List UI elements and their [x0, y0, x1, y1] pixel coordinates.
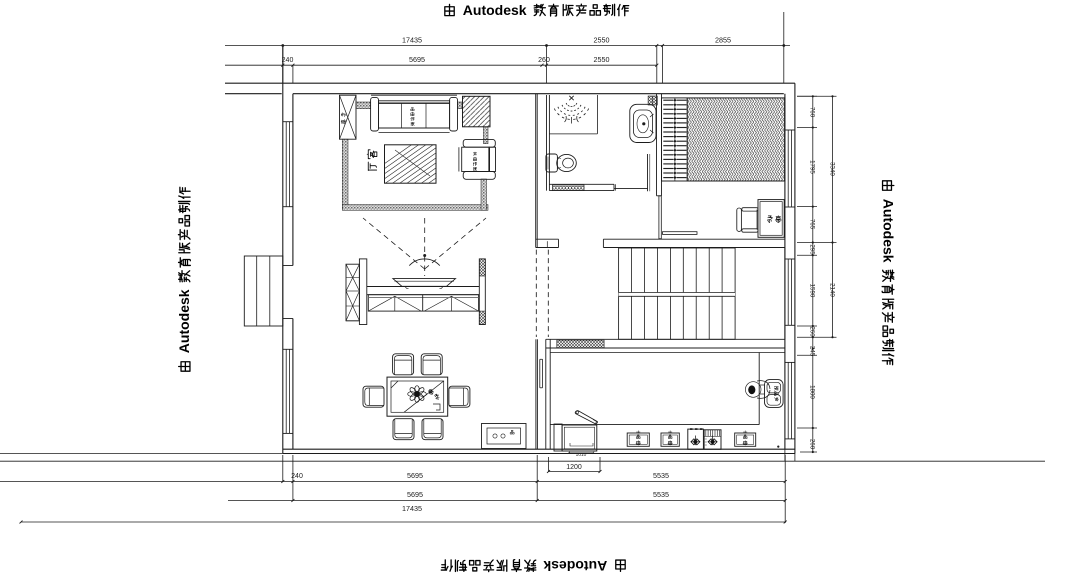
svg-text:240: 240 [282, 57, 294, 64]
svg-text:260: 260 [538, 57, 550, 64]
svg-text:Autodesk: Autodesk [543, 558, 607, 574]
svg-text:Autodesk: Autodesk [463, 2, 527, 18]
svg-text:5695: 5695 [407, 490, 423, 499]
svg-text:5695: 5695 [409, 55, 425, 64]
svg-text:1795: 1795 [809, 160, 816, 174]
svg-text:245: 245 [809, 346, 816, 357]
svg-text:765: 765 [809, 219, 816, 230]
svg-text:Autodesk: Autodesk [880, 199, 896, 263]
svg-text:Autodesk: Autodesk [176, 289, 192, 353]
svg-text:1800: 1800 [809, 385, 816, 399]
svg-text:260: 260 [809, 326, 816, 337]
svg-text:1200: 1200 [566, 464, 582, 471]
svg-text:5695: 5695 [407, 471, 423, 480]
svg-text:17435: 17435 [402, 36, 422, 45]
svg-text:760: 760 [809, 107, 816, 118]
svg-text:17435: 17435 [402, 504, 422, 513]
svg-text:5535: 5535 [653, 490, 669, 499]
svg-text:1590: 1590 [809, 284, 816, 298]
svg-text:2855: 2855 [715, 36, 731, 45]
svg-text:5535: 5535 [653, 471, 669, 480]
svg-text:295: 295 [809, 244, 816, 255]
svg-text:2550: 2550 [594, 55, 610, 64]
svg-text:2550: 2550 [594, 36, 610, 45]
svg-text:3340: 3340 [828, 162, 835, 176]
svg-text:260: 260 [809, 439, 816, 450]
svg-text:2140: 2140 [828, 283, 835, 297]
